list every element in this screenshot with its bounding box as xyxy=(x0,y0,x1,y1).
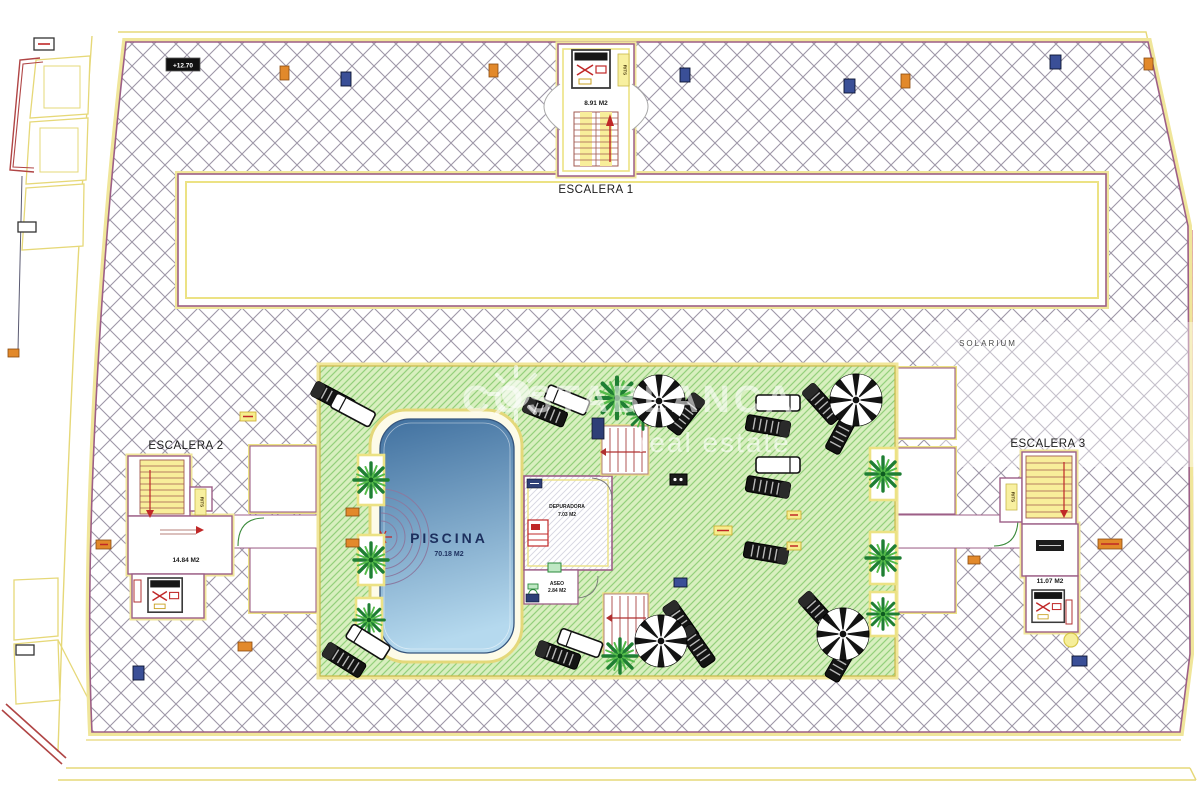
staircase-icon xyxy=(1026,456,1072,518)
level-marker: +12.70 xyxy=(166,58,200,71)
cad-marker xyxy=(238,642,252,651)
pool-area: PISCINA 70.18 M2 xyxy=(370,410,522,662)
cad-marker xyxy=(1144,58,1153,70)
cad-marker xyxy=(674,578,687,587)
solarium-label: SOLARIUM xyxy=(959,339,1017,348)
roof-drain-icon xyxy=(1064,633,1078,647)
level-mark-label: +12.70 xyxy=(173,63,193,70)
cad-marker xyxy=(968,556,980,564)
depuradora-area: 7.03 M2 xyxy=(558,512,576,518)
light-well xyxy=(897,368,955,438)
escalera-2-area: 14.84 M2 xyxy=(172,557,199,564)
cad-marker xyxy=(680,68,690,82)
pool-label: PISCINA xyxy=(410,530,488,546)
elevator-icon xyxy=(148,578,182,612)
elevator-icon xyxy=(572,50,610,88)
room-depuradora: DEPURADORA 7.03 M2 xyxy=(524,476,612,570)
cad-marker xyxy=(346,539,359,547)
aseo-area: 2.84 M2 xyxy=(548,588,566,594)
escalera-3-area: 11.07 M2 xyxy=(1037,578,1064,585)
pool-area-label: 70.18 M2 xyxy=(434,551,463,558)
escalera-1-area: 8.91 M2 xyxy=(584,100,608,107)
light-well xyxy=(897,448,955,514)
cad-marker xyxy=(346,508,359,516)
cad-marker xyxy=(341,72,351,86)
escalera-1-label: ESCALERA 1 xyxy=(558,184,633,196)
light-well xyxy=(250,446,316,512)
light-well xyxy=(897,548,955,612)
cad-marker xyxy=(133,666,144,680)
escalera-3-label: ESCALERA 3 xyxy=(1010,438,1085,450)
parasol-icon xyxy=(633,375,685,427)
sun-lounger-icon xyxy=(756,395,800,411)
elevator-icon xyxy=(1032,590,1064,622)
light-well xyxy=(250,548,316,612)
depuradora-label: DEPURADORA xyxy=(549,504,585,510)
terrace-stair-top xyxy=(592,418,648,474)
top-corridor xyxy=(178,174,1106,306)
pump-equipment-icon xyxy=(528,520,548,546)
staircase-icon xyxy=(574,112,618,166)
floor-plan-drawing: SOLARIUM RITS 8.91 M2 ESCALERA 1 xyxy=(0,0,1200,800)
sink-icon xyxy=(548,563,561,572)
cad-marker xyxy=(8,349,19,357)
aseo-label: ASEO xyxy=(550,581,564,587)
cad-marker xyxy=(1050,55,1061,69)
rits-duct-label: RITS xyxy=(1011,492,1016,502)
sun-lounger-icon xyxy=(756,457,800,473)
cad-marker xyxy=(670,474,687,485)
rits-duct-label: RITS xyxy=(200,497,205,507)
cad-marker xyxy=(844,79,855,93)
cad-marker xyxy=(489,64,498,77)
parasol-icon xyxy=(830,374,882,426)
stair-core-escalera-1: RITS 8.91 M2 ESCALERA 1 xyxy=(544,44,648,196)
cad-marker xyxy=(1072,656,1087,666)
floor-plan-page: SOLARIUM RITS 8.91 M2 ESCALERA 1 xyxy=(0,0,1200,800)
escalera-2-label: ESCALERA 2 xyxy=(148,440,223,452)
rits-duct-label: RITS xyxy=(623,65,628,75)
cad-marker xyxy=(280,66,289,80)
cad-marker xyxy=(901,74,910,88)
parasol-icon xyxy=(817,608,869,660)
parasol-icon xyxy=(635,615,687,667)
